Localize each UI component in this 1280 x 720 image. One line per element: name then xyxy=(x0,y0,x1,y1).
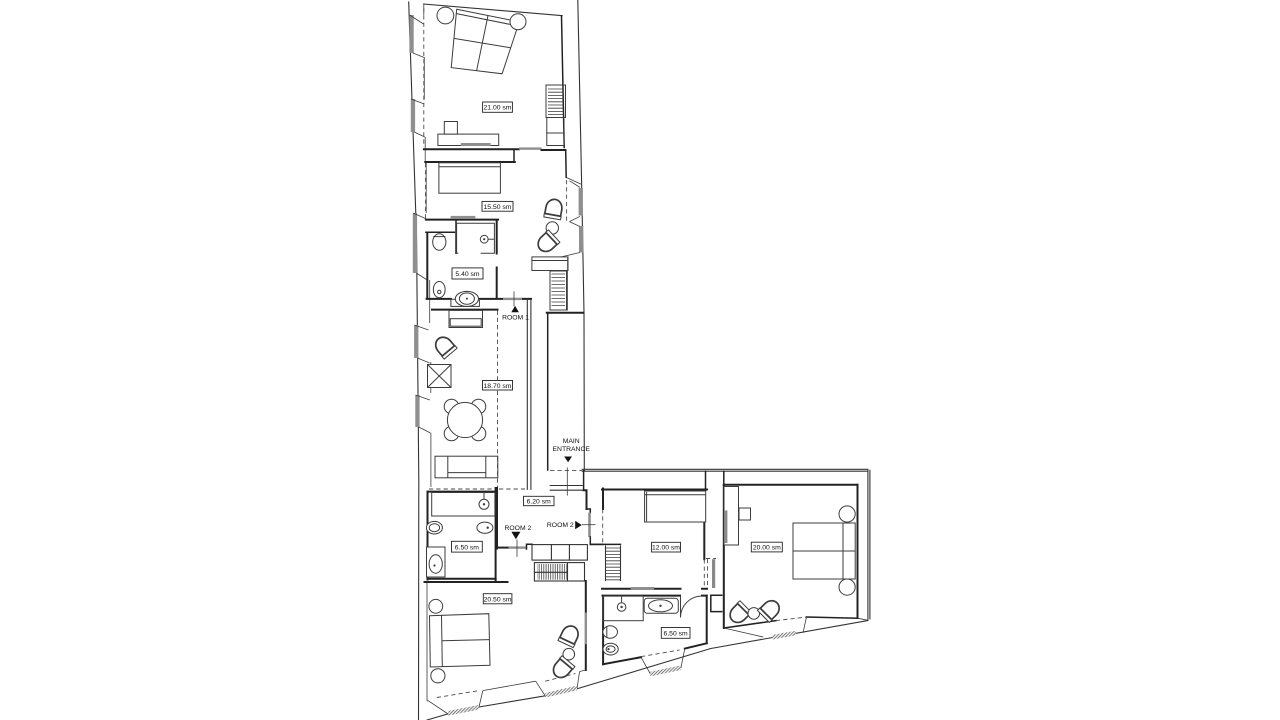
svg-text:6.20 sm: 6.20 sm xyxy=(527,499,552,506)
svg-text:ROOM 2: ROOM 2 xyxy=(547,522,574,529)
svg-text:MAIN: MAIN xyxy=(563,438,580,445)
svg-text:6.50 sm: 6.50 sm xyxy=(455,544,480,551)
svg-text:20.50 sm: 20.50 sm xyxy=(484,596,512,603)
svg-text:18.70 sm: 18.70 sm xyxy=(484,383,512,390)
svg-text:ENTRANCE: ENTRANCE xyxy=(553,446,591,453)
svg-text:6,50 sm: 6,50 sm xyxy=(664,631,689,638)
svg-text:ROOM 1: ROOM 1 xyxy=(502,315,529,322)
svg-text:12.00 sm: 12.00 sm xyxy=(652,545,680,552)
svg-text:ROOM 2: ROOM 2 xyxy=(504,525,531,532)
svg-text:15.50 sm: 15.50 sm xyxy=(484,204,512,211)
svg-text:5.40 sm: 5.40 sm xyxy=(455,271,480,278)
svg-text:20.00 sm: 20.00 sm xyxy=(753,545,781,552)
svg-text:21.00 sm: 21.00 sm xyxy=(484,105,512,112)
